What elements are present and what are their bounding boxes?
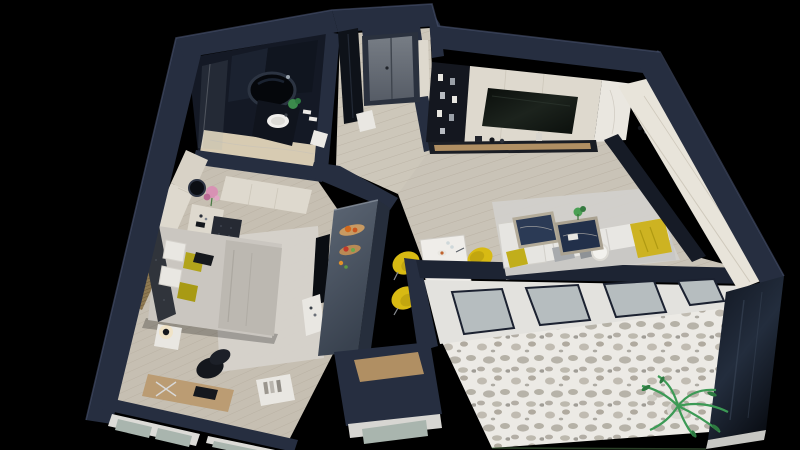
kitchen-south-wall	[334, 342, 442, 426]
white-pillow	[159, 266, 182, 288]
apartment-render	[0, 0, 800, 450]
round-mirror	[189, 180, 205, 196]
sink-basin	[271, 117, 285, 125]
kitchen-end-block	[334, 342, 442, 444]
black-shelving-unit	[426, 62, 470, 148]
table-lamp	[163, 329, 169, 335]
tub-faucet	[286, 75, 290, 79]
ground-green-edge	[492, 448, 706, 449]
door-handle	[385, 66, 388, 69]
white-pillow	[163, 240, 186, 262]
window-glass	[452, 289, 514, 334]
sink-faucet	[284, 113, 287, 116]
stone	[647, 395, 657, 402]
marble-coffee-table	[556, 218, 602, 254]
window-glass	[604, 281, 666, 317]
